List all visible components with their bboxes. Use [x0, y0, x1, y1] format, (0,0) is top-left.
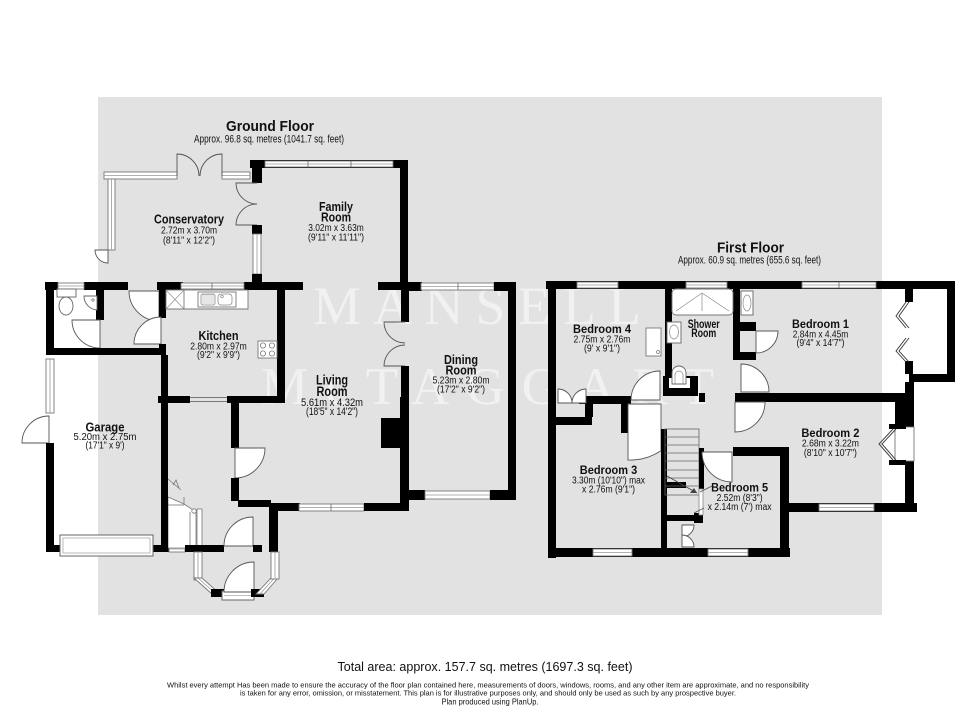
svg-text:x 2.14m (7') max: x 2.14m (7') max [708, 502, 772, 513]
svg-text:(8'10" x 10'7"): (8'10" x 10'7") [804, 448, 857, 459]
svg-text:Approx. 96.8 sq. metres (1041.: Approx. 96.8 sq. metres (1041.7 sq. feet… [194, 134, 344, 146]
svg-text:(8'11" x 12'2"): (8'11" x 12'2") [163, 235, 215, 247]
svg-text:Plan produced using PlanUp.: Plan produced using PlanUp. [442, 698, 539, 707]
svg-text:(9'4" x 14'7"): (9'4" x 14'7") [797, 338, 845, 349]
svg-text:(17'1" x 9'): (17'1" x 9') [86, 441, 125, 452]
svg-text:(18'5" x 14'2"): (18'5" x 14'2") [306, 406, 358, 418]
svg-text:(9'11" x 11'11"): (9'11" x 11'11") [308, 232, 364, 244]
svg-text:x 2.76m (9'1"): x 2.76m (9'1") [582, 485, 635, 496]
svg-text:(17'2" x 9'2"): (17'2" x 9'2") [437, 384, 485, 396]
svg-text:Total area: approx. 157.7 sq.: Total area: approx. 157.7 sq. metres (16… [338, 659, 633, 674]
svg-text:Approx. 60.9 sq. metres (655.6: Approx. 60.9 sq. metres (655.6 sq. feet) [678, 255, 821, 267]
svg-text:is taken for any error, omissi: is taken for any error, omission, or mis… [240, 689, 736, 698]
svg-text:Room: Room [691, 326, 716, 340]
svg-text:(9'2" x 9'9"): (9'2" x 9'9") [197, 350, 240, 361]
svg-text:(9' x 9'1"): (9' x 9'1") [584, 344, 620, 355]
svg-text:Ground Floor: Ground Floor [226, 118, 314, 135]
